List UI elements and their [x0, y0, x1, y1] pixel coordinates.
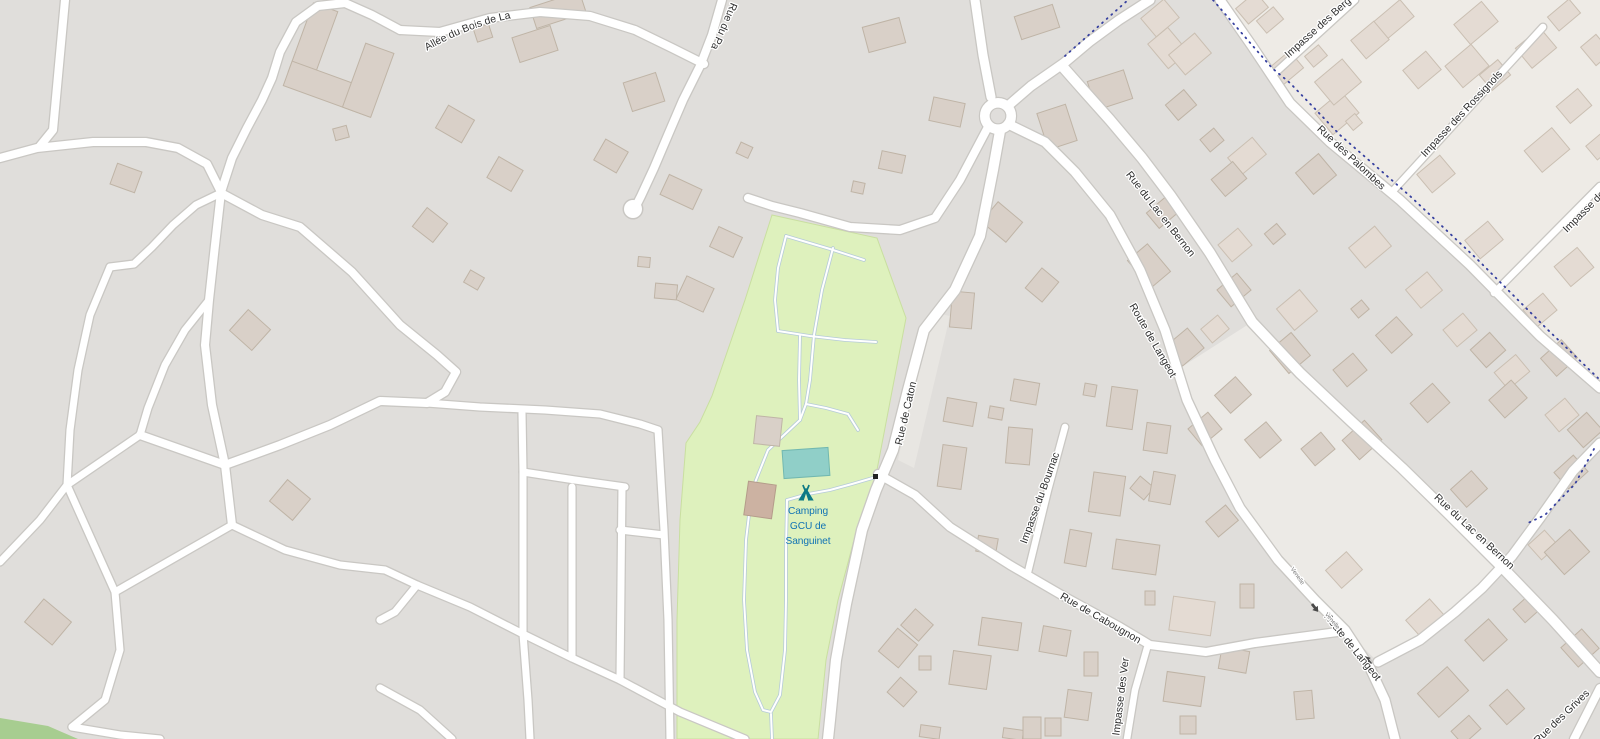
svg-text:GCU de: GCU de: [790, 521, 827, 532]
svg-text:Camping: Camping: [788, 506, 829, 517]
svg-text:Sanguinet: Sanguinet: [786, 536, 831, 547]
